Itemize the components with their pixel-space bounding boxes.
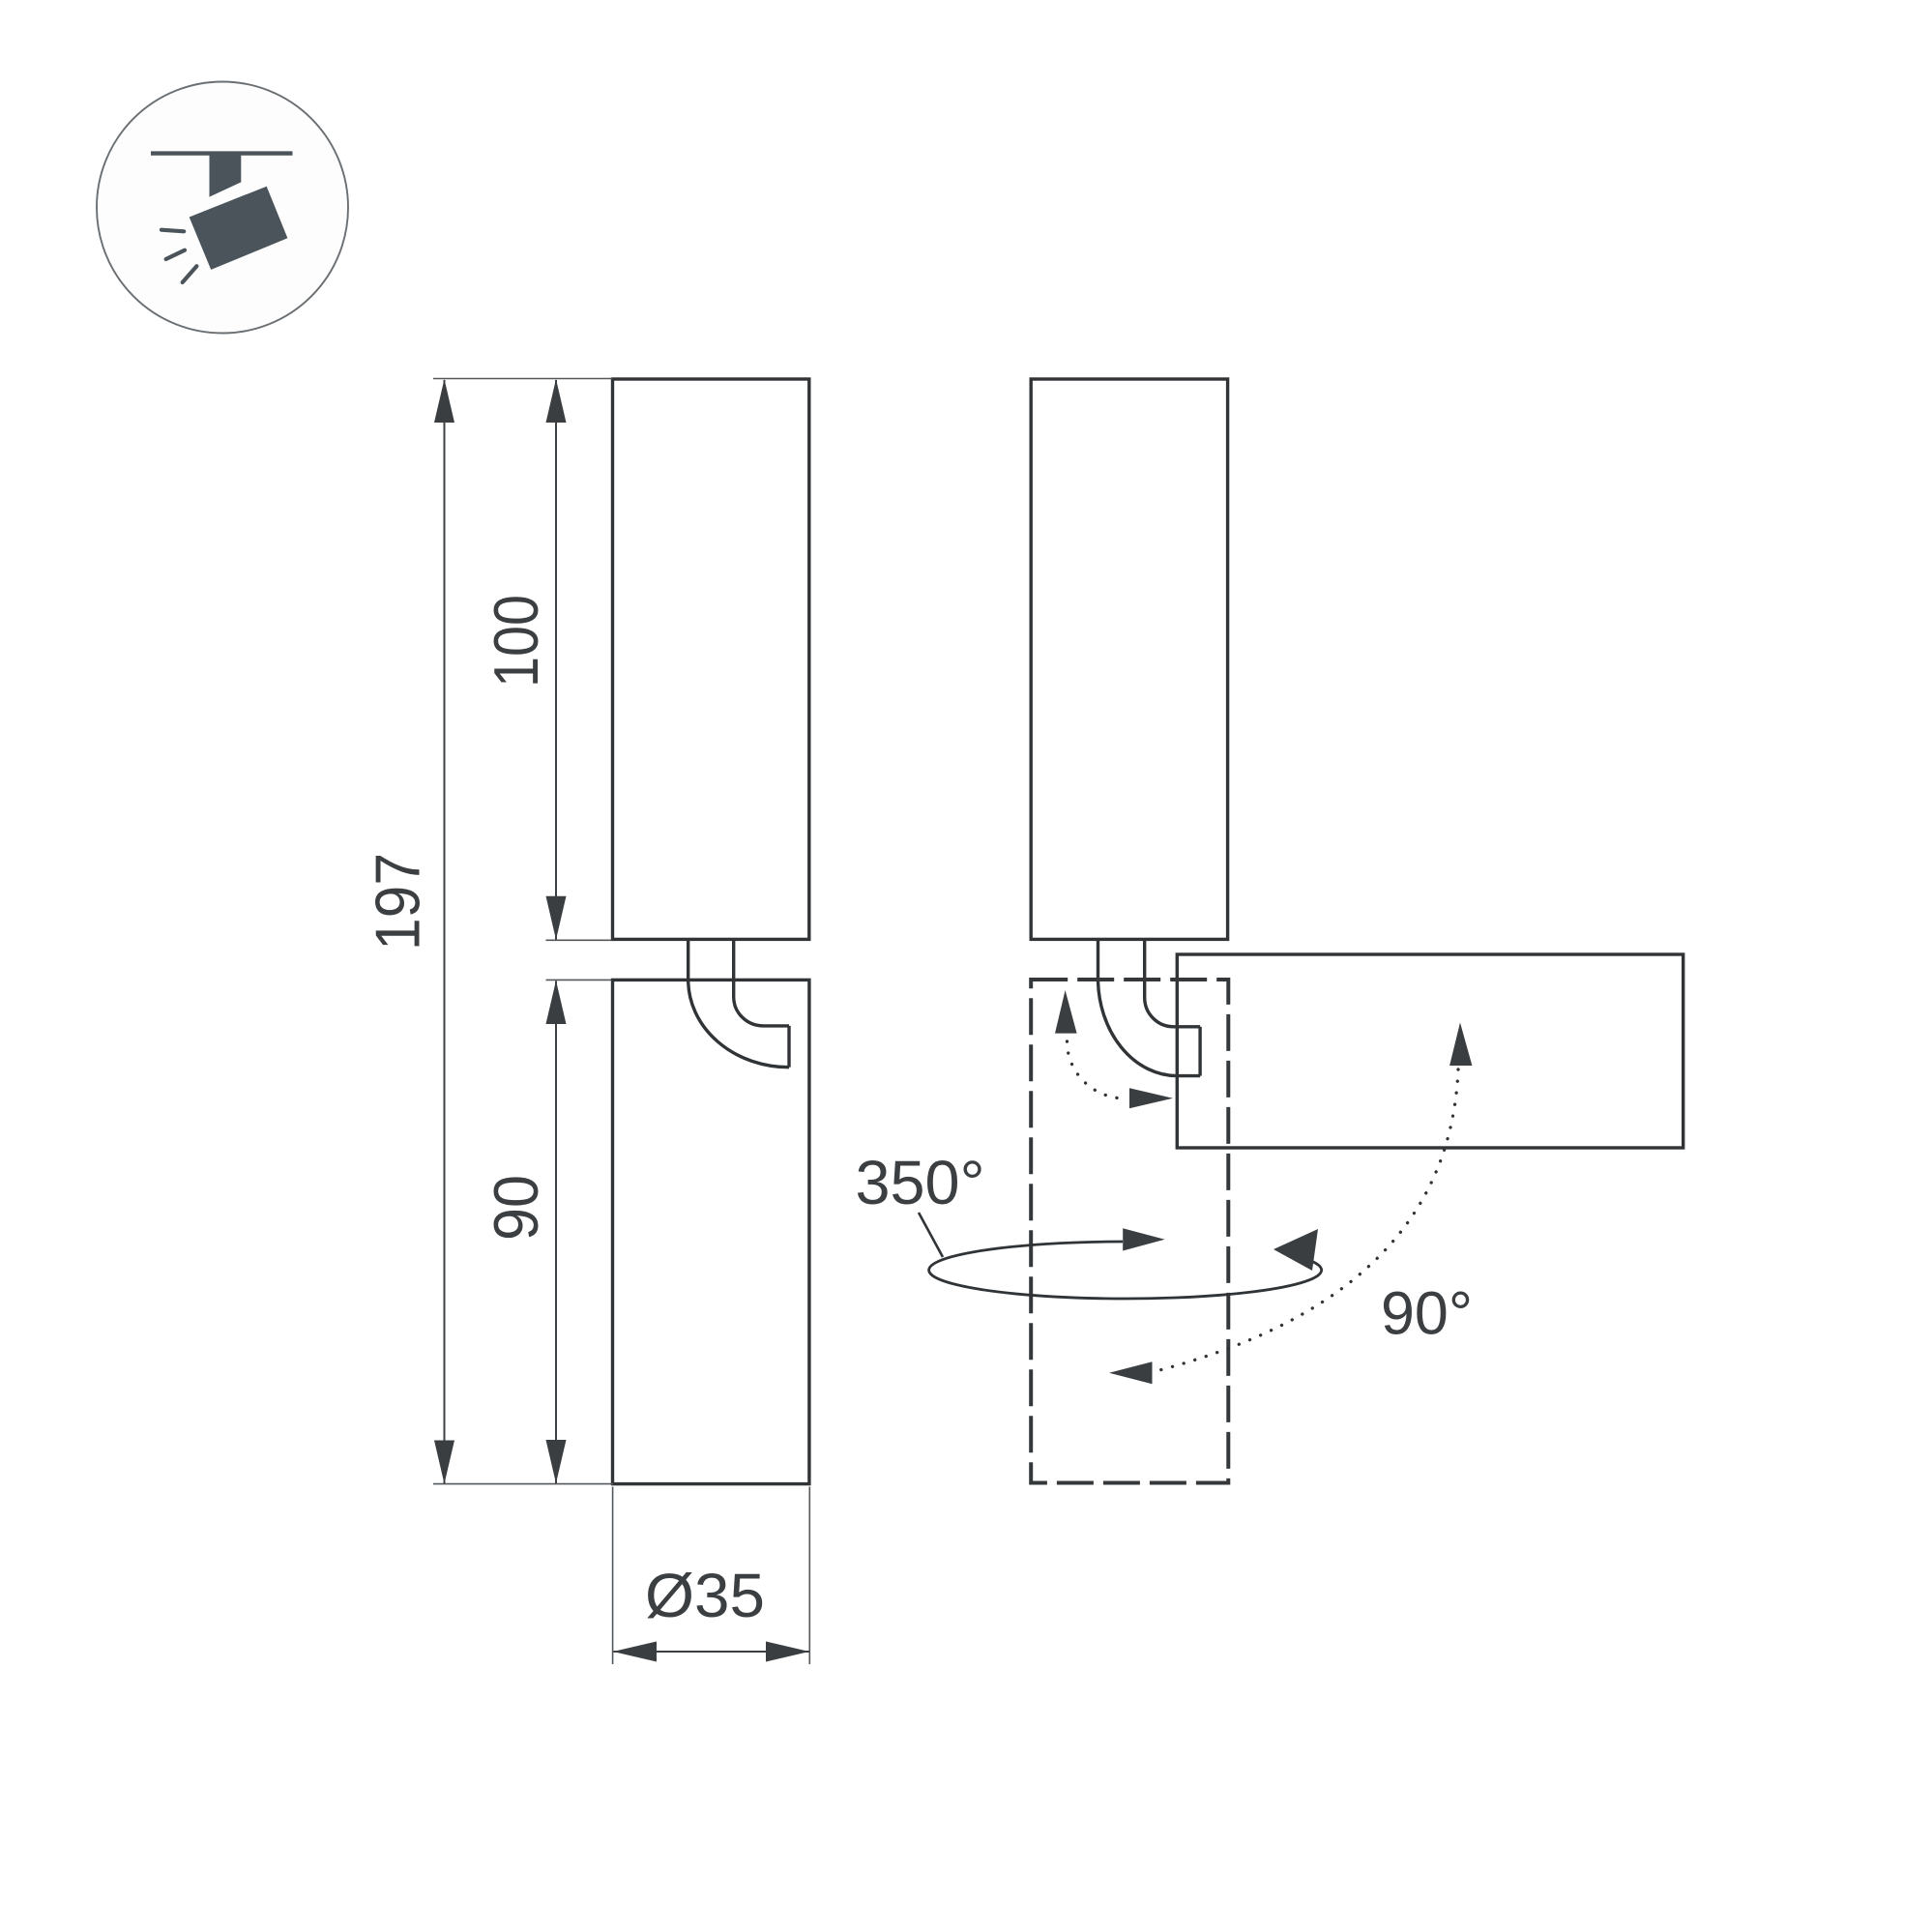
- svg-text:Ø35: Ø35: [645, 1561, 765, 1630]
- svg-text:90: 90: [481, 1175, 551, 1241]
- svg-text:100: 100: [481, 595, 551, 688]
- svg-text:90°: 90°: [1381, 1280, 1473, 1348]
- svg-text:350°: 350°: [856, 1148, 985, 1217]
- svg-text:197: 197: [363, 853, 433, 951]
